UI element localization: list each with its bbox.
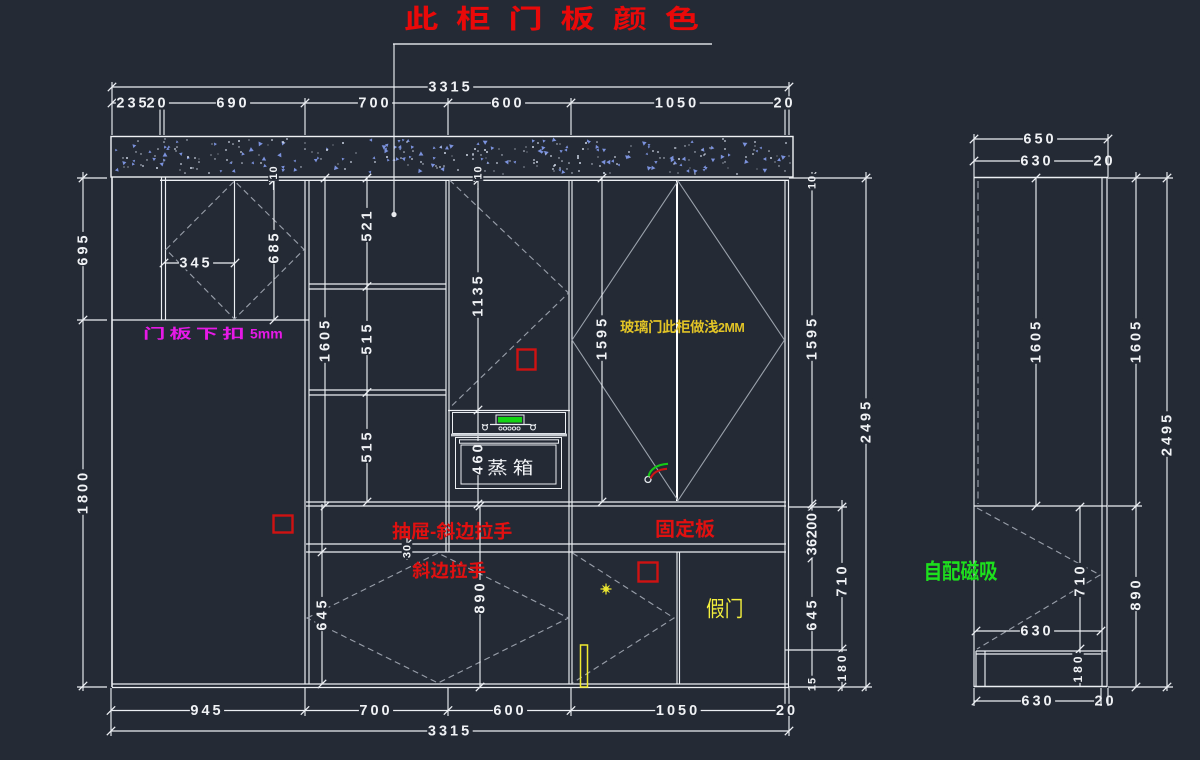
svg-text:235: 235 xyxy=(116,96,149,112)
svg-text:345: 345 xyxy=(179,256,212,272)
svg-text:945: 945 xyxy=(190,703,223,719)
svg-text:1595: 1595 xyxy=(595,316,611,360)
svg-text:1800: 1800 xyxy=(76,470,92,514)
svg-text:521: 521 xyxy=(360,208,376,241)
svg-text:700: 700 xyxy=(358,96,391,112)
svg-text:20: 20 xyxy=(773,96,795,112)
svg-text:515: 515 xyxy=(360,429,376,462)
svg-text:20: 20 xyxy=(1094,694,1116,710)
svg-text:460: 460 xyxy=(471,441,487,474)
svg-text:1605: 1605 xyxy=(318,318,334,362)
svg-text:2495: 2495 xyxy=(1160,412,1176,456)
svg-text:5mm: 5mm xyxy=(250,326,283,342)
svg-text:10: 10 xyxy=(268,165,280,179)
svg-text:515: 515 xyxy=(360,321,376,354)
svg-text:1050: 1050 xyxy=(656,703,700,719)
svg-text:1050: 1050 xyxy=(655,96,699,112)
svg-text:30: 30 xyxy=(402,544,414,558)
svg-text:690: 690 xyxy=(216,96,249,112)
svg-text:3315: 3315 xyxy=(428,80,472,96)
svg-text:645: 645 xyxy=(805,597,821,630)
svg-text:600: 600 xyxy=(491,96,524,112)
svg-text:3315: 3315 xyxy=(428,724,472,740)
svg-text:630: 630 xyxy=(1020,624,1053,640)
svg-text:710: 710 xyxy=(1073,563,1089,596)
svg-text:710: 710 xyxy=(835,563,851,596)
svg-text:2MM: 2MM xyxy=(718,321,744,335)
svg-text:890: 890 xyxy=(473,580,489,613)
svg-text:890: 890 xyxy=(1129,577,1145,610)
svg-text:695: 695 xyxy=(76,232,92,265)
svg-text:700: 700 xyxy=(359,703,392,719)
svg-text:20: 20 xyxy=(776,703,798,719)
svg-text:10: 10 xyxy=(473,165,485,179)
svg-text:1605: 1605 xyxy=(1029,319,1045,363)
svg-text:20: 20 xyxy=(1093,154,1115,170)
svg-text:15: 15 xyxy=(807,677,819,691)
svg-text:685: 685 xyxy=(267,230,283,263)
svg-text:20: 20 xyxy=(146,96,168,112)
svg-text:2495: 2495 xyxy=(859,399,875,443)
svg-text:1595: 1595 xyxy=(805,316,821,360)
svg-text:600: 600 xyxy=(493,703,526,719)
svg-text:180: 180 xyxy=(1071,653,1085,682)
svg-text:1135: 1135 xyxy=(471,273,487,316)
svg-text:630: 630 xyxy=(1021,694,1054,710)
svg-text:630: 630 xyxy=(1020,154,1053,170)
svg-text:10: 10 xyxy=(807,175,819,189)
svg-text:645: 645 xyxy=(315,597,331,630)
svg-text:650: 650 xyxy=(1023,132,1056,148)
svg-text:180: 180 xyxy=(835,652,849,681)
svg-text:-: - xyxy=(430,522,436,543)
svg-text:1605: 1605 xyxy=(1129,319,1145,363)
svg-text:36200: 36200 xyxy=(805,513,821,556)
